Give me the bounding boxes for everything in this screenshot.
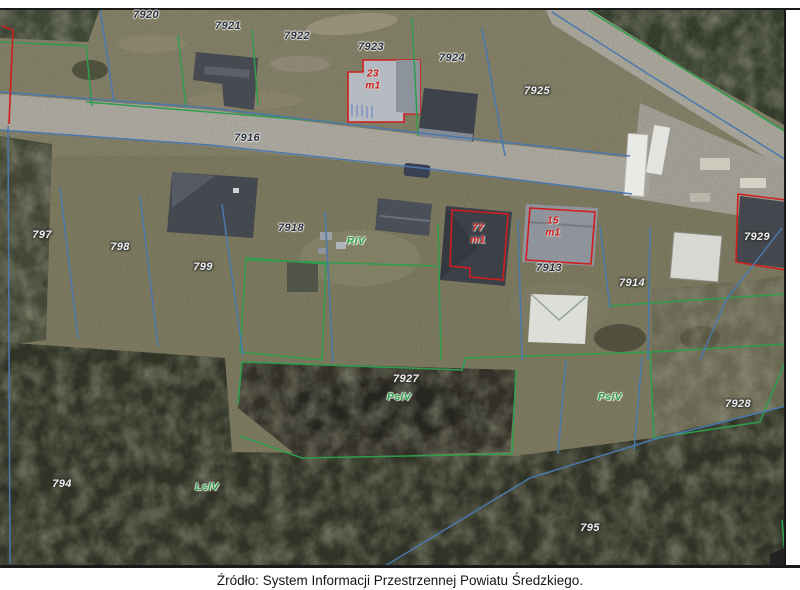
house-roof: [522, 204, 598, 266]
trailer: [624, 133, 648, 196]
source-caption: Źródło: System Informacji Przestrzennej …: [0, 573, 800, 588]
car: [403, 163, 430, 179]
house-roof: [670, 232, 722, 282]
cadastral-map: 7920792179227923792479257916797798799791…: [0, 8, 800, 568]
shed: [287, 262, 318, 292]
scanned-page: 7920792179227923792479257916797798799791…: [0, 0, 800, 590]
aerial-photo: [0, 8, 800, 568]
